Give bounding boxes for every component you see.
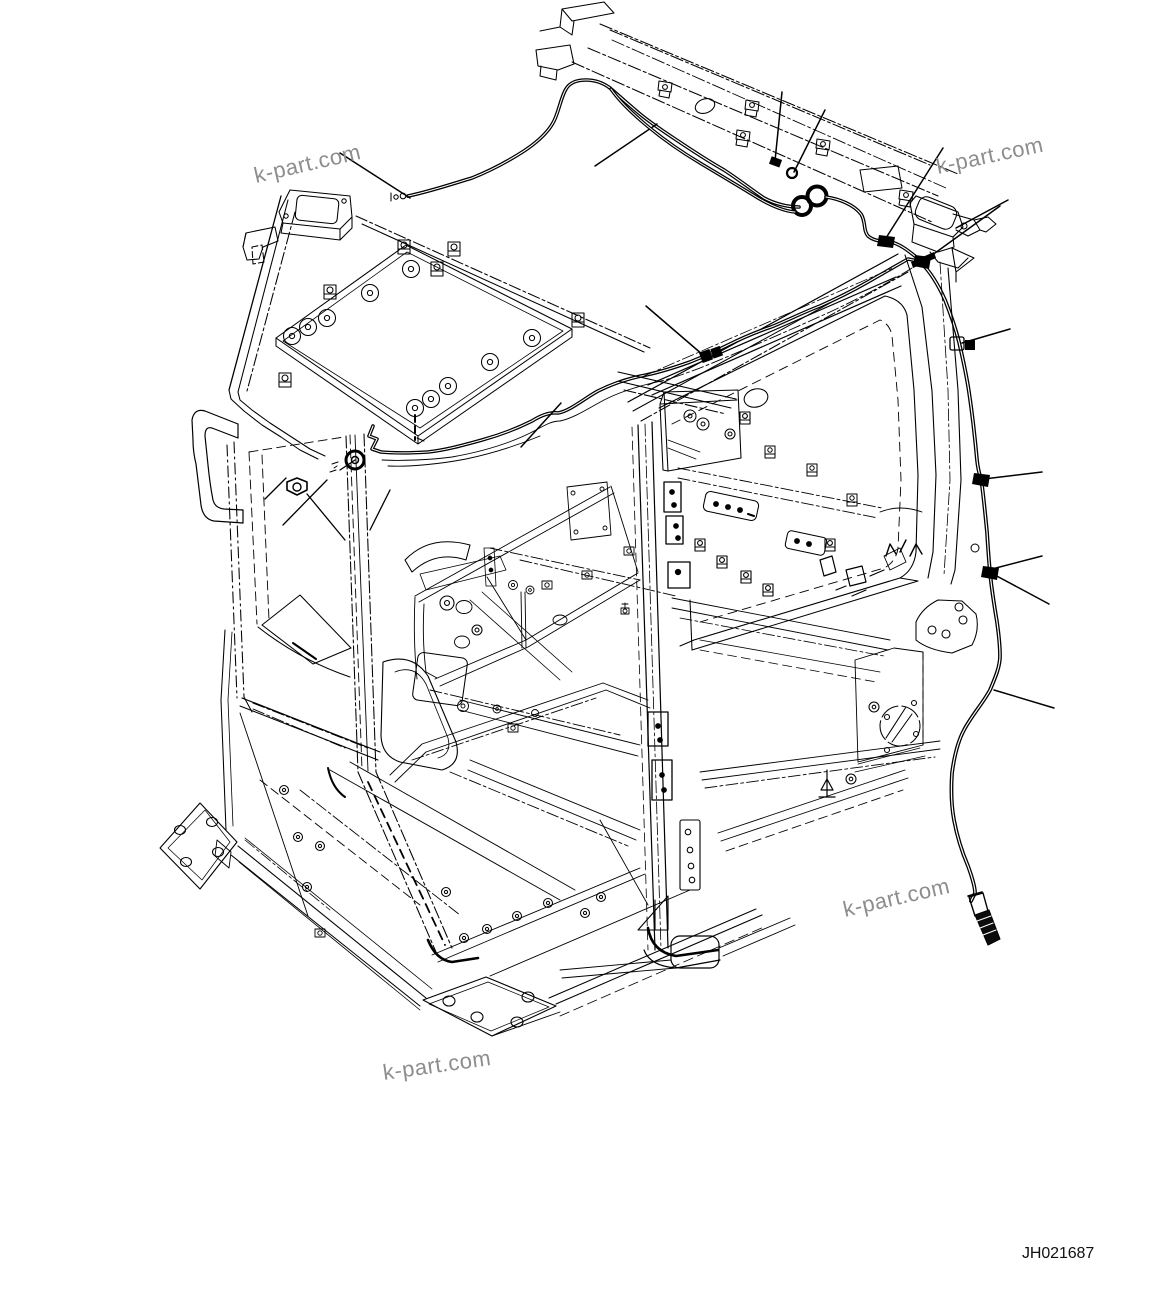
svg-text:k-part.com: k-part.com (934, 132, 1046, 179)
svg-text:JH021687: JH021687 (1022, 1245, 1094, 1262)
svg-text:k-part.com: k-part.com (381, 1045, 492, 1085)
svg-text:k-part.com: k-part.com (841, 873, 953, 922)
svg-text:k-part.com: k-part.com (252, 139, 364, 188)
